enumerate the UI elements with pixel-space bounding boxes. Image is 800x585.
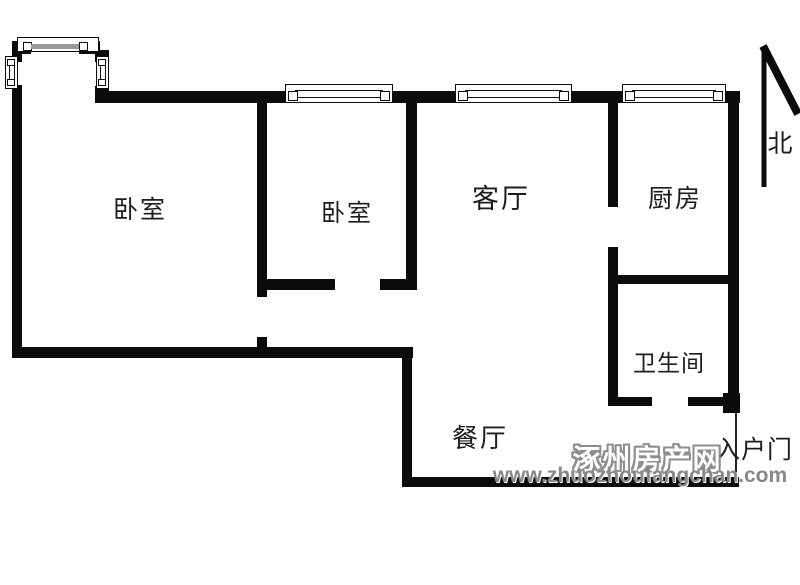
window-post [288, 91, 298, 101]
wall-left-outer [12, 85, 22, 358]
room-label-dining-room: 餐厅 [434, 425, 526, 454]
wall-corner-block [723, 393, 740, 413]
window-post [98, 79, 106, 86]
floorplan-canvas: 卧室 卧室 客厅 厨房 卫生间 餐厅 北 入户门 涿州房产网 www.zhuoz… [0, 0, 800, 585]
window-kitchen [622, 84, 726, 103]
wall-top [391, 91, 458, 103]
wall-dining-west [402, 352, 412, 487]
room-label-kitchen: 厨房 [631, 186, 719, 214]
room-label-bathroom: 卫生间 [609, 351, 729, 376]
window-bedroom-2 [285, 84, 393, 103]
bay-side-window [96, 56, 109, 89]
wall-kitchen-bathroom-west [608, 247, 618, 406]
bay-window-glazing [31, 44, 79, 49]
wall-bedroom-2-south [262, 279, 335, 290]
window-post [713, 91, 723, 101]
window-post [625, 91, 635, 101]
window-post [79, 42, 88, 51]
room-label-living-room: 客厅 [455, 185, 547, 215]
wall-kitchen-west-upper [608, 97, 618, 207]
wall-bedroom-2-east [406, 97, 417, 287]
watermark-site-url: www.zhuozhoufangchan.com [490, 464, 790, 488]
wall-bathroom-south [688, 397, 728, 406]
north-label: 北 [764, 131, 796, 159]
north-arrow-icon [745, 40, 800, 192]
room-label-bedroom-1: 卧室 [96, 197, 184, 225]
bay-side-window [5, 56, 18, 89]
wall-bathroom-south [608, 397, 652, 406]
window-glazing [465, 90, 562, 98]
wall-right-outer [728, 91, 739, 413]
window-post [98, 59, 106, 66]
window-post [458, 91, 468, 101]
wall-door-stub-bedroom-1 [257, 337, 267, 349]
room-label-bedroom-2: 卧室 [303, 201, 391, 227]
window-post [7, 79, 15, 86]
window-glazing [9, 65, 15, 80]
window-glazing [632, 90, 716, 98]
window-glazing [100, 65, 106, 80]
wall-bedrooms-south [12, 347, 413, 358]
window-glazing [295, 90, 383, 98]
window-post [559, 91, 569, 101]
window-post [7, 59, 15, 66]
window-post [380, 91, 390, 101]
wall-between-bedrooms [257, 97, 267, 297]
wall-bathroom-north [613, 275, 739, 284]
window-living-room [455, 84, 572, 103]
